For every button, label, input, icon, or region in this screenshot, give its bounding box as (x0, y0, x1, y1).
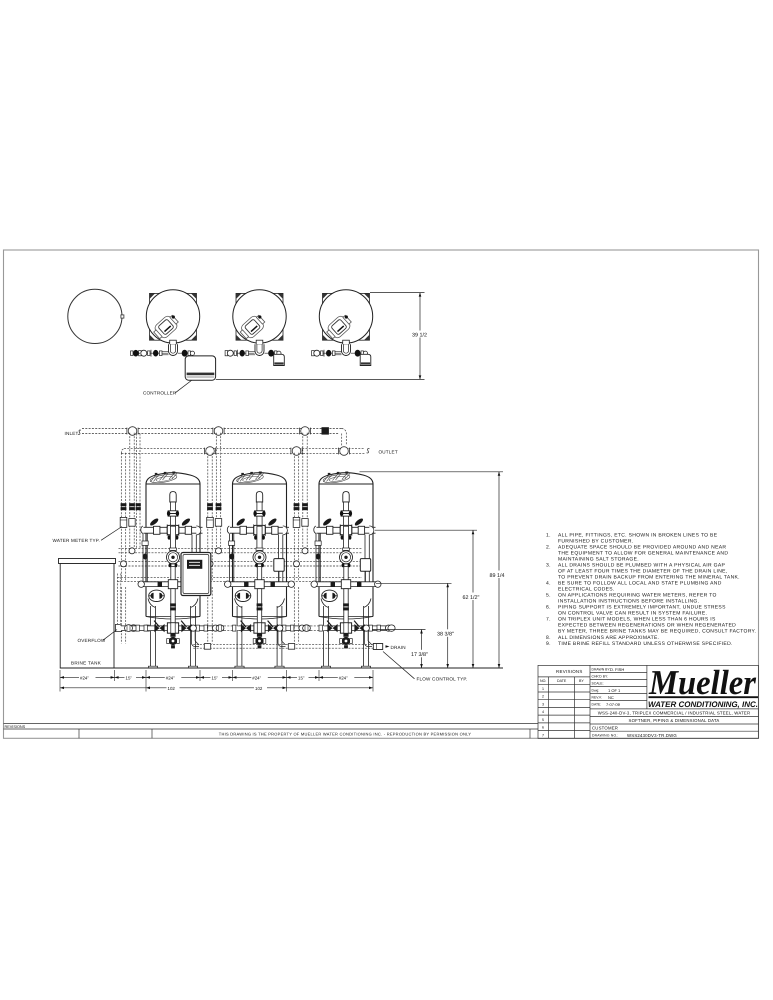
svg-text:WATER METER TYP.: WATER METER TYP. (53, 538, 100, 543)
svg-text:38 3/8": 38 3/8" (437, 632, 454, 638)
svg-text:89 1/4: 89 1/4 (490, 573, 505, 579)
svg-text:WATER CONDITIONING, INC.: WATER CONDITIONING, INC. (648, 700, 758, 709)
svg-text:Dwg:: Dwg: (592, 689, 600, 693)
svg-text:4: 4 (542, 710, 544, 714)
svg-text:D. FISH: D. FISH (610, 667, 624, 672)
svg-text:#24": #24" (252, 675, 261, 680)
svg-text:7-07-09: 7-07-09 (606, 702, 621, 707)
svg-text:62 1/2": 62 1/2" (463, 595, 480, 601)
svg-text:REVISIONS: REVISIONS (5, 725, 26, 729)
svg-text:39 1/2: 39 1/2 (412, 333, 427, 339)
svg-text:#24": #24" (166, 675, 175, 680)
svg-text:3.: 3. (546, 563, 551, 569)
svg-text:9.: 9. (546, 641, 551, 647)
svg-text:ON APPLICATIONS REQUIRING WATE: ON APPLICATIONS REQUIRING WATER METERS, … (558, 593, 717, 599)
svg-text:7.: 7. (546, 617, 551, 623)
svg-text:BRINE TANK: BRINE TANK (71, 661, 102, 666)
svg-text:BY METER, THREE BRINE TANKS MA: BY METER, THREE BRINE TANKS MAY BE REQUI… (558, 629, 756, 635)
svg-text:15": 15" (126, 675, 133, 680)
svg-text:WSS-240-DV-3, TRIPLEX COMMERCI: WSS-240-DV-3, TRIPLEX COMMERCIAL / INDUS… (598, 711, 751, 716)
svg-text:THE EQUIPMENT TO ALLOW FOR GEN: THE EQUIPMENT TO ALLOW FOR GENERAL MAINT… (558, 551, 728, 557)
svg-text:5: 5 (542, 718, 544, 722)
svg-text:7: 7 (542, 733, 544, 737)
svg-text:NC: NC (608, 695, 614, 700)
svg-text:OUTLET: OUTLET (379, 449, 398, 454)
svg-text:17 3/8": 17 3/8" (411, 652, 428, 658)
svg-text:4.: 4. (546, 581, 551, 587)
svg-text:3: 3 (542, 702, 544, 706)
svg-text:SCALE:: SCALE: (592, 682, 604, 686)
svg-text:102: 102 (168, 686, 176, 691)
svg-text:15": 15" (298, 675, 305, 680)
svg-text:15": 15" (212, 675, 219, 680)
svg-text:THIS DRAWING IS THE PROPERTY O: THIS DRAWING IS THE PROPERTY OF MUELLER … (219, 732, 472, 737)
svg-text:FLOW CONTROL TYP.: FLOW CONTROL TYP. (417, 677, 468, 682)
svg-text:INLET: INLET (65, 431, 79, 436)
svg-text:1: 1 (542, 687, 544, 691)
svg-text:OVERFLOW: OVERFLOW (78, 638, 106, 643)
svg-text:CONTROLLER: CONTROLLER (143, 391, 177, 396)
svg-text:DATE: DATE (557, 679, 567, 683)
svg-text:2.: 2. (546, 545, 551, 551)
svg-text:5.: 5. (546, 593, 551, 599)
svg-text:6: 6 (542, 726, 544, 730)
svg-text:NO.: NO. (540, 679, 546, 683)
svg-text:CUSTOMER: CUSTOMER (592, 725, 618, 730)
svg-text:DRAIN: DRAIN (391, 645, 406, 650)
svg-text:#24": #24" (80, 675, 89, 680)
svg-text:6.: 6. (546, 605, 551, 611)
svg-text:Mueller: Mueller (648, 663, 756, 702)
svg-text:SOFTNER, PIPING & DIMENSIONAL: SOFTNER, PIPING & DIMENSIONAL DATA (629, 718, 720, 723)
svg-text:DRAWING NO.:: DRAWING NO.: (592, 734, 619, 738)
svg-text:CHK'D BY:: CHK'D BY: (592, 675, 609, 679)
svg-text:102: 102 (255, 686, 263, 691)
svg-text:1.: 1. (546, 533, 551, 539)
svg-text:REV.#:: REV.#: (592, 696, 602, 700)
svg-text:TIME BRINE REFILL STANDARD UNL: TIME BRINE REFILL STANDARD UNLESS OTHERW… (558, 641, 733, 647)
svg-text:DATE:: DATE: (592, 703, 602, 707)
svg-text:WSS2430DV3-TR.DWG: WSS2430DV3-TR.DWG (627, 733, 677, 738)
svg-text:DRAWN BY:: DRAWN BY: (592, 668, 611, 672)
svg-text:2: 2 (542, 695, 544, 699)
svg-text:#24": #24" (339, 675, 348, 680)
svg-text:BY: BY (579, 679, 584, 683)
svg-text:1 OF 1: 1 OF 1 (608, 688, 621, 693)
svg-text:REVISIONS: REVISIONS (556, 669, 583, 674)
